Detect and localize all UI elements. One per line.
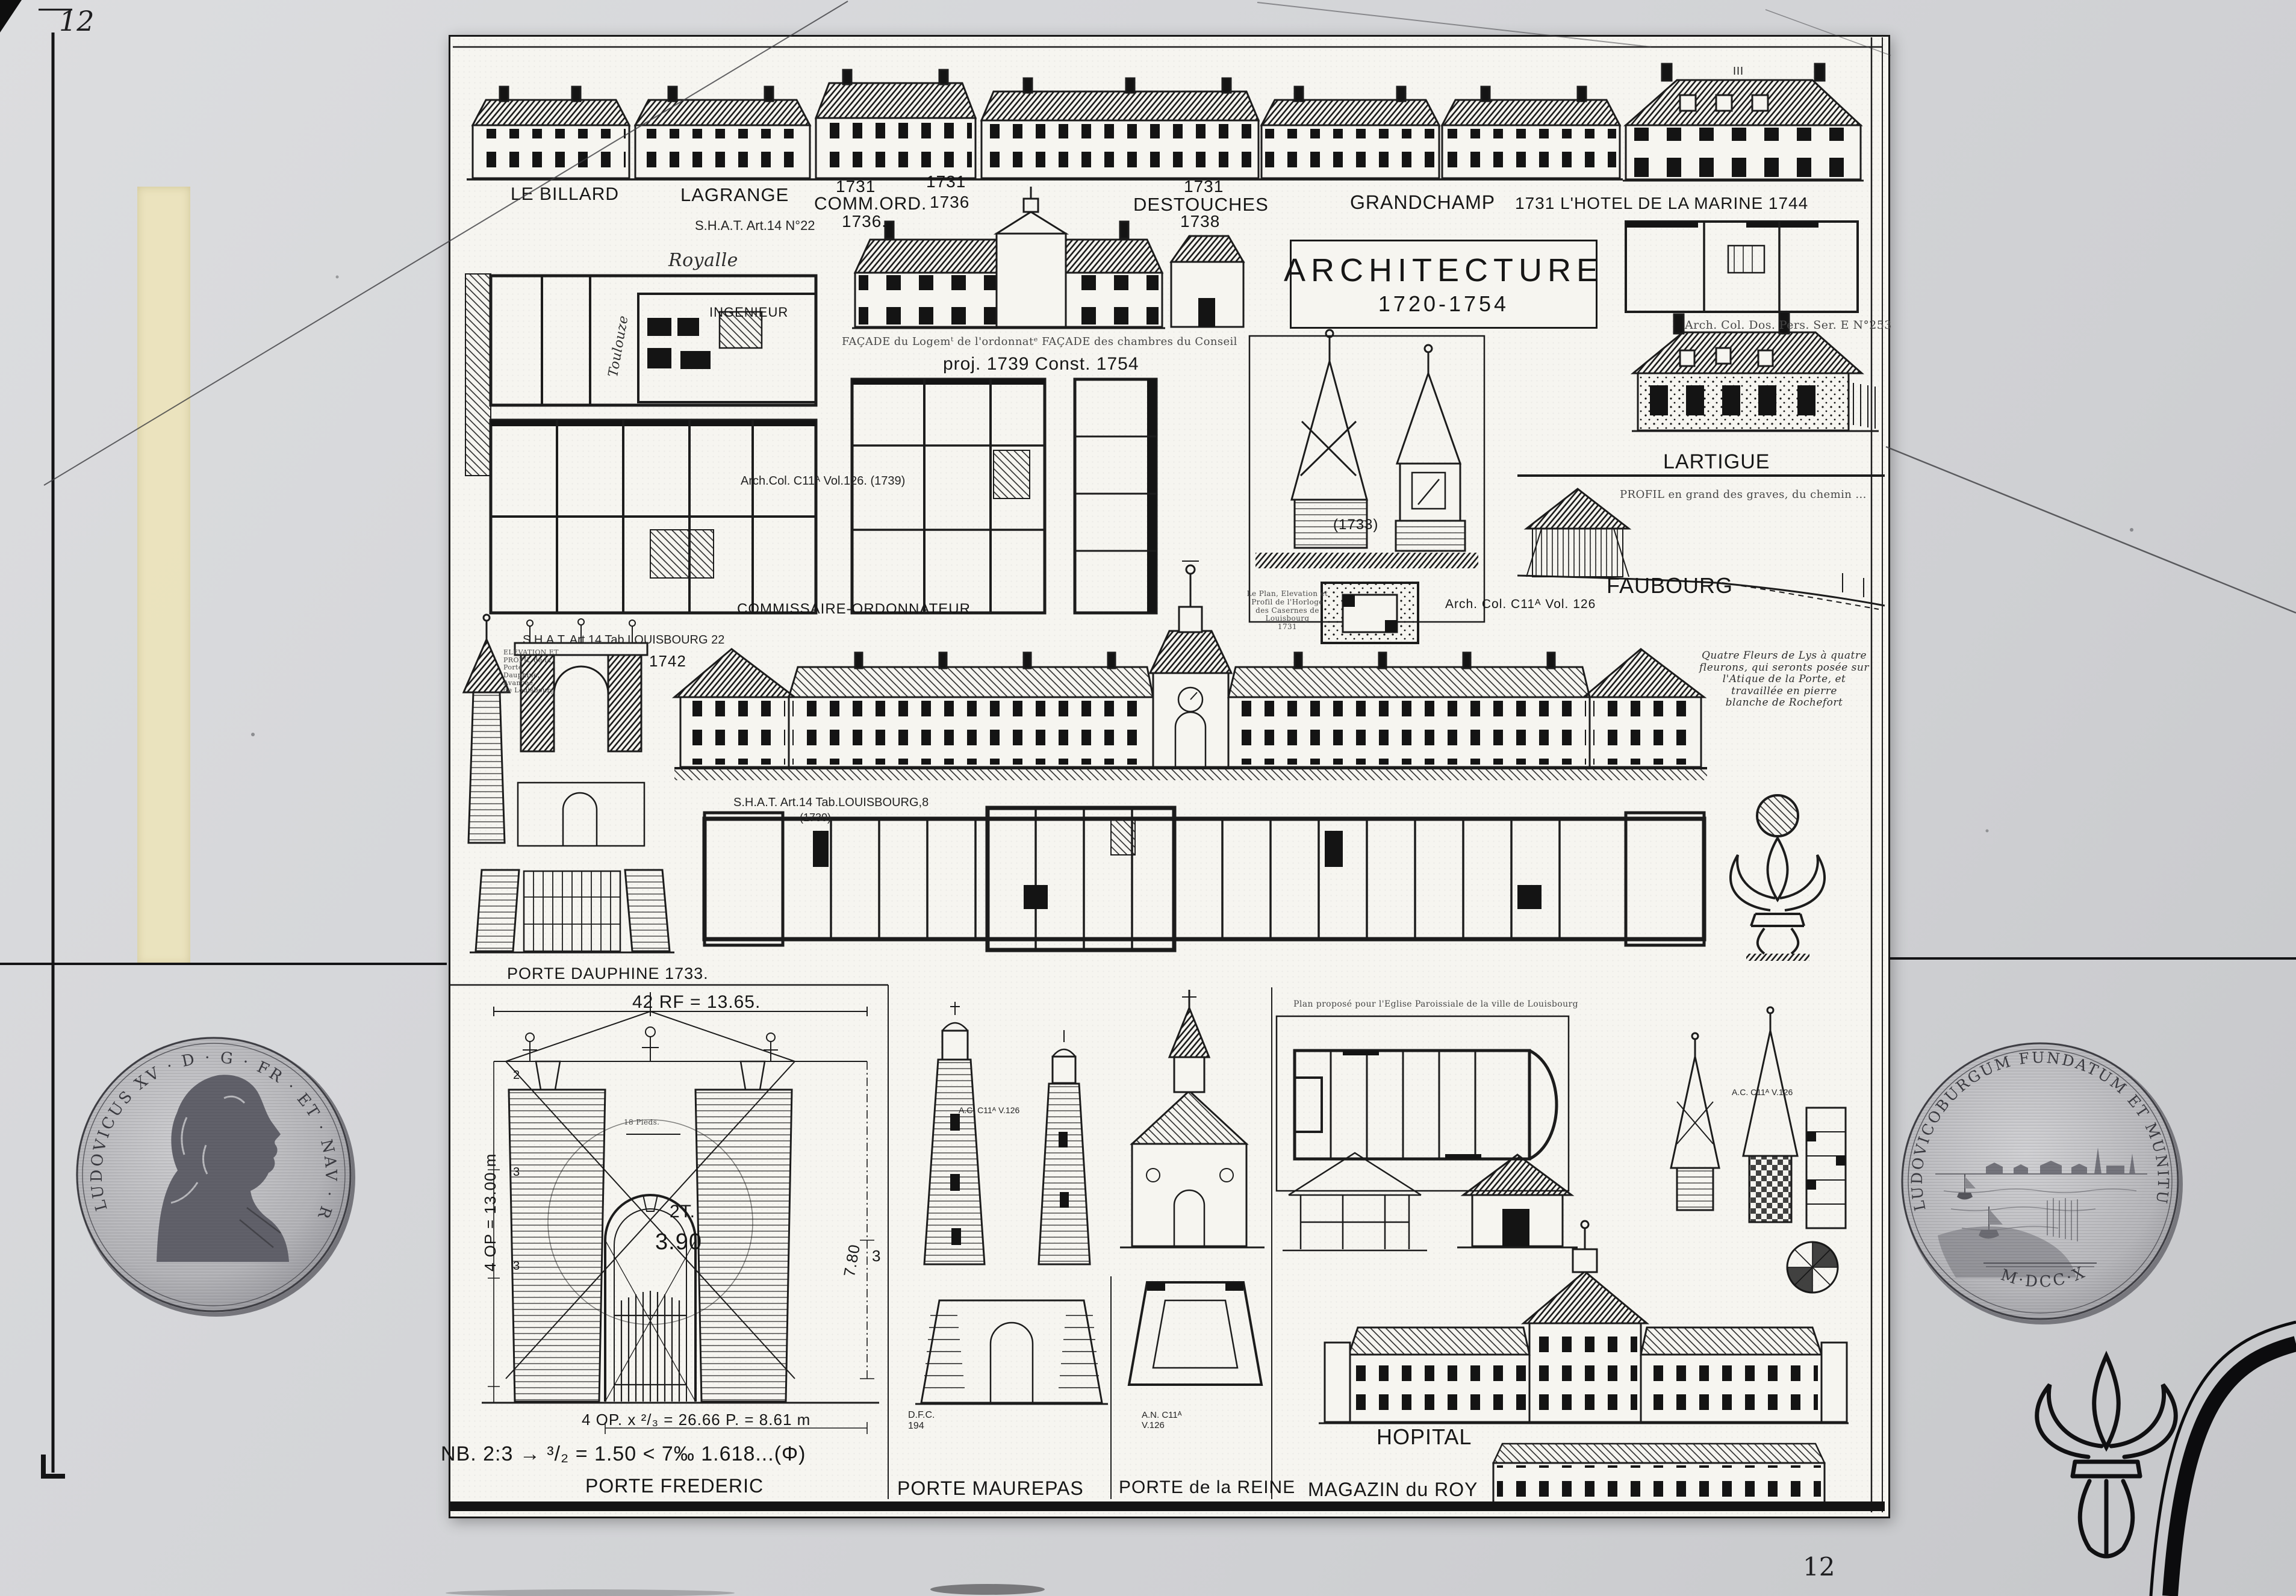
label-proj-const: proj. 1739 Const. 1754 (943, 354, 1139, 375)
label-ac-c11a-right: A.C. C11ᴬ V.126 (1732, 1087, 1793, 1097)
medal-louis-xv: LUDOVICUS XV · D · G · FR · ET · NAV · R… (66, 1027, 361, 1322)
label-arch-col-1739: Arch.Col. C11ᴬ Vol.126. (1739) (741, 474, 905, 488)
fleur-finial-sketch (1731, 795, 1825, 961)
plan-commissaire-ordonnateur (491, 420, 816, 613)
label-dim-3b: 3 (513, 1259, 520, 1273)
label-an-c11a: A.N. C11ᴬ V.126 (1142, 1410, 1182, 1431)
drawing-porte-de-la-reine (1120, 990, 1265, 1385)
details-clochers (1671, 1007, 1846, 1293)
label-steeple-year: (1733) (1333, 517, 1378, 533)
elevation-le-billard (473, 87, 629, 178)
section-charpente-1 (1283, 1153, 1427, 1250)
elevation-porte-dauphine (464, 615, 674, 952)
label-lartigue: LARTIGUE (1663, 450, 1770, 474)
label-eglise-caption: Plan proposé pour l'Eglise Paroissiale d… (1293, 999, 1578, 1009)
plan-caserne (705, 808, 1704, 950)
scanned-document-page: ARCHITECTURE 1720-1754 LE BILLARDLAGRANG… (0, 0, 2296, 1596)
label-porte-dauphine: PORTE DAUPHINE 1733. (507, 964, 709, 983)
label-grandchamp: GRANDCHAMP (1350, 191, 1495, 214)
label-n-3: 3 (872, 1247, 881, 1265)
elevation-magazin-du-roy (1493, 1444, 1825, 1506)
plan-hotel-marine (1626, 222, 1858, 312)
label-ingenieur: INGENIEUR (709, 305, 788, 320)
title-box: ARCHITECTURE 1720-1754 (1290, 240, 1598, 329)
label-hotel-marks: III (1733, 65, 1744, 78)
label-shat-art14-n22: S.H.A.T. Art.14 N°22 (695, 218, 815, 233)
label-pieds-18: 18 Pieds. (624, 1119, 659, 1127)
label-royalle: Royalle (668, 250, 738, 272)
corner-mark-top-left: 12 (59, 5, 95, 37)
label-n-390: 3.90 (655, 1229, 702, 1256)
elevation-grandchamp (1262, 87, 1439, 178)
plan-right-wing (1075, 379, 1156, 613)
label-hotel-marine-label: 1731 L'HOTEL DE LA MARINE 1744 (1515, 194, 1808, 213)
label-two-t: 2T. (670, 1202, 695, 1223)
elevation-hotel-de-la-marine (1623, 64, 1864, 181)
label-comm-ord-1736: 1736. (842, 212, 887, 231)
sheet-artwork (0, 0, 2296, 1596)
page-number: 12 (1803, 1552, 1835, 1582)
elevation-lagrange (635, 87, 810, 178)
plan-chambres-du-conseil (852, 379, 1045, 613)
label-steeple-caption: Le Plan, Elevation et Profil de l'Horlog… (1245, 590, 1330, 632)
label-formula-4op: 4 OP. x ²/₃ = 26.66 P. = 8.61 m (582, 1411, 810, 1429)
label-le-billard: LE BILLARD (511, 184, 619, 205)
elevation-row-house (1442, 87, 1620, 178)
label-dim-3a: 3 (513, 1166, 520, 1179)
elevation-destouches (982, 78, 1258, 178)
label-dos-pers: Arch. Col. Dos. Pers. Ser. E N°253 (1685, 319, 1892, 332)
section-charpente-2 (1457, 1155, 1578, 1247)
page-title-dates: 1720-1754 (1378, 291, 1509, 317)
label-dfc-note: D.F.C. 194 (908, 1410, 935, 1432)
label-quatre-fleurs-note: Quatre Fleurs de Lys à quatre fleurons, … (1697, 650, 1871, 709)
label-ac-c11a-left: A.C. C11ᴬ V.126 (959, 1105, 1019, 1115)
label-facade-caption: FAÇADE du Logemᵗ de l'ordonnatᵉ FAÇADE d… (842, 336, 1237, 349)
label-rf-42: 42 RF = 13.65. (632, 992, 761, 1013)
label-lagrange: LAGRANGE (680, 184, 789, 206)
label-profil-caption: PROFIL en grand des graves, du chemin ..… (1620, 489, 1867, 501)
elevation-caserne-bastion-du-roi (674, 561, 1707, 780)
label-destouches-year-bottom: 1738 (1180, 212, 1220, 231)
page-title: ARCHITECTURE (1284, 252, 1604, 289)
label-dauphine-caption: ELEVATION ET PROFIL de la Porte Dauphine… (503, 649, 564, 695)
label-porte-maurepas: PORTE MAUREPAS (897, 1477, 1084, 1500)
label-faubourg: FAUBOURG (1607, 573, 1733, 598)
label-porte-reine: PORTE de la REINE (1119, 1477, 1295, 1498)
label-block-year-1736: 1736 (930, 193, 969, 212)
label-block-year-1731: 1731 (926, 172, 966, 191)
label-shat-tab-8: S.H.A.T. Art.14 Tab.LOUISBOURG,8 (733, 796, 929, 810)
label-dim-2: 2 (513, 1069, 520, 1082)
label-shat-tab-8-year: (1730) (800, 812, 831, 824)
label-hopital: HOPITAL (1377, 1424, 1472, 1449)
elevation-hopital (1319, 1221, 1849, 1423)
elevation-comm-ord (816, 70, 975, 178)
drawing-porte-maurepas (915, 1002, 1108, 1404)
label-magazin-roy: MAGAZIN du ROY (1308, 1479, 1478, 1501)
label-porte-frederic: PORTE FREDERIC (585, 1475, 764, 1497)
label-commissaire-ordonnateur: COMMISSAIRE-ORDONNATEUR (737, 601, 971, 618)
label-dauphine-year: 1742 (649, 653, 686, 671)
label-nb-note: NB. 2:3 → ³/₂ = 1.50 < 7‰ 1.618...(Φ) (441, 1442, 806, 1466)
finial-glyphs (523, 1027, 778, 1061)
medal-louisbourg-founding: LUDOVICOBURGUM FUNDATUM ET MUNITUM M·DCC… (1896, 1037, 2185, 1326)
label-shat-tab-22: S.H.A.T. Art.14 Tab.LOUISBOURG 22 (523, 633, 724, 647)
label-op-4: 4 OP = 13.00 m (482, 1154, 500, 1272)
label-arch-col-126: Arch. Col. C11ᴬ Vol. 126 (1445, 597, 1596, 612)
